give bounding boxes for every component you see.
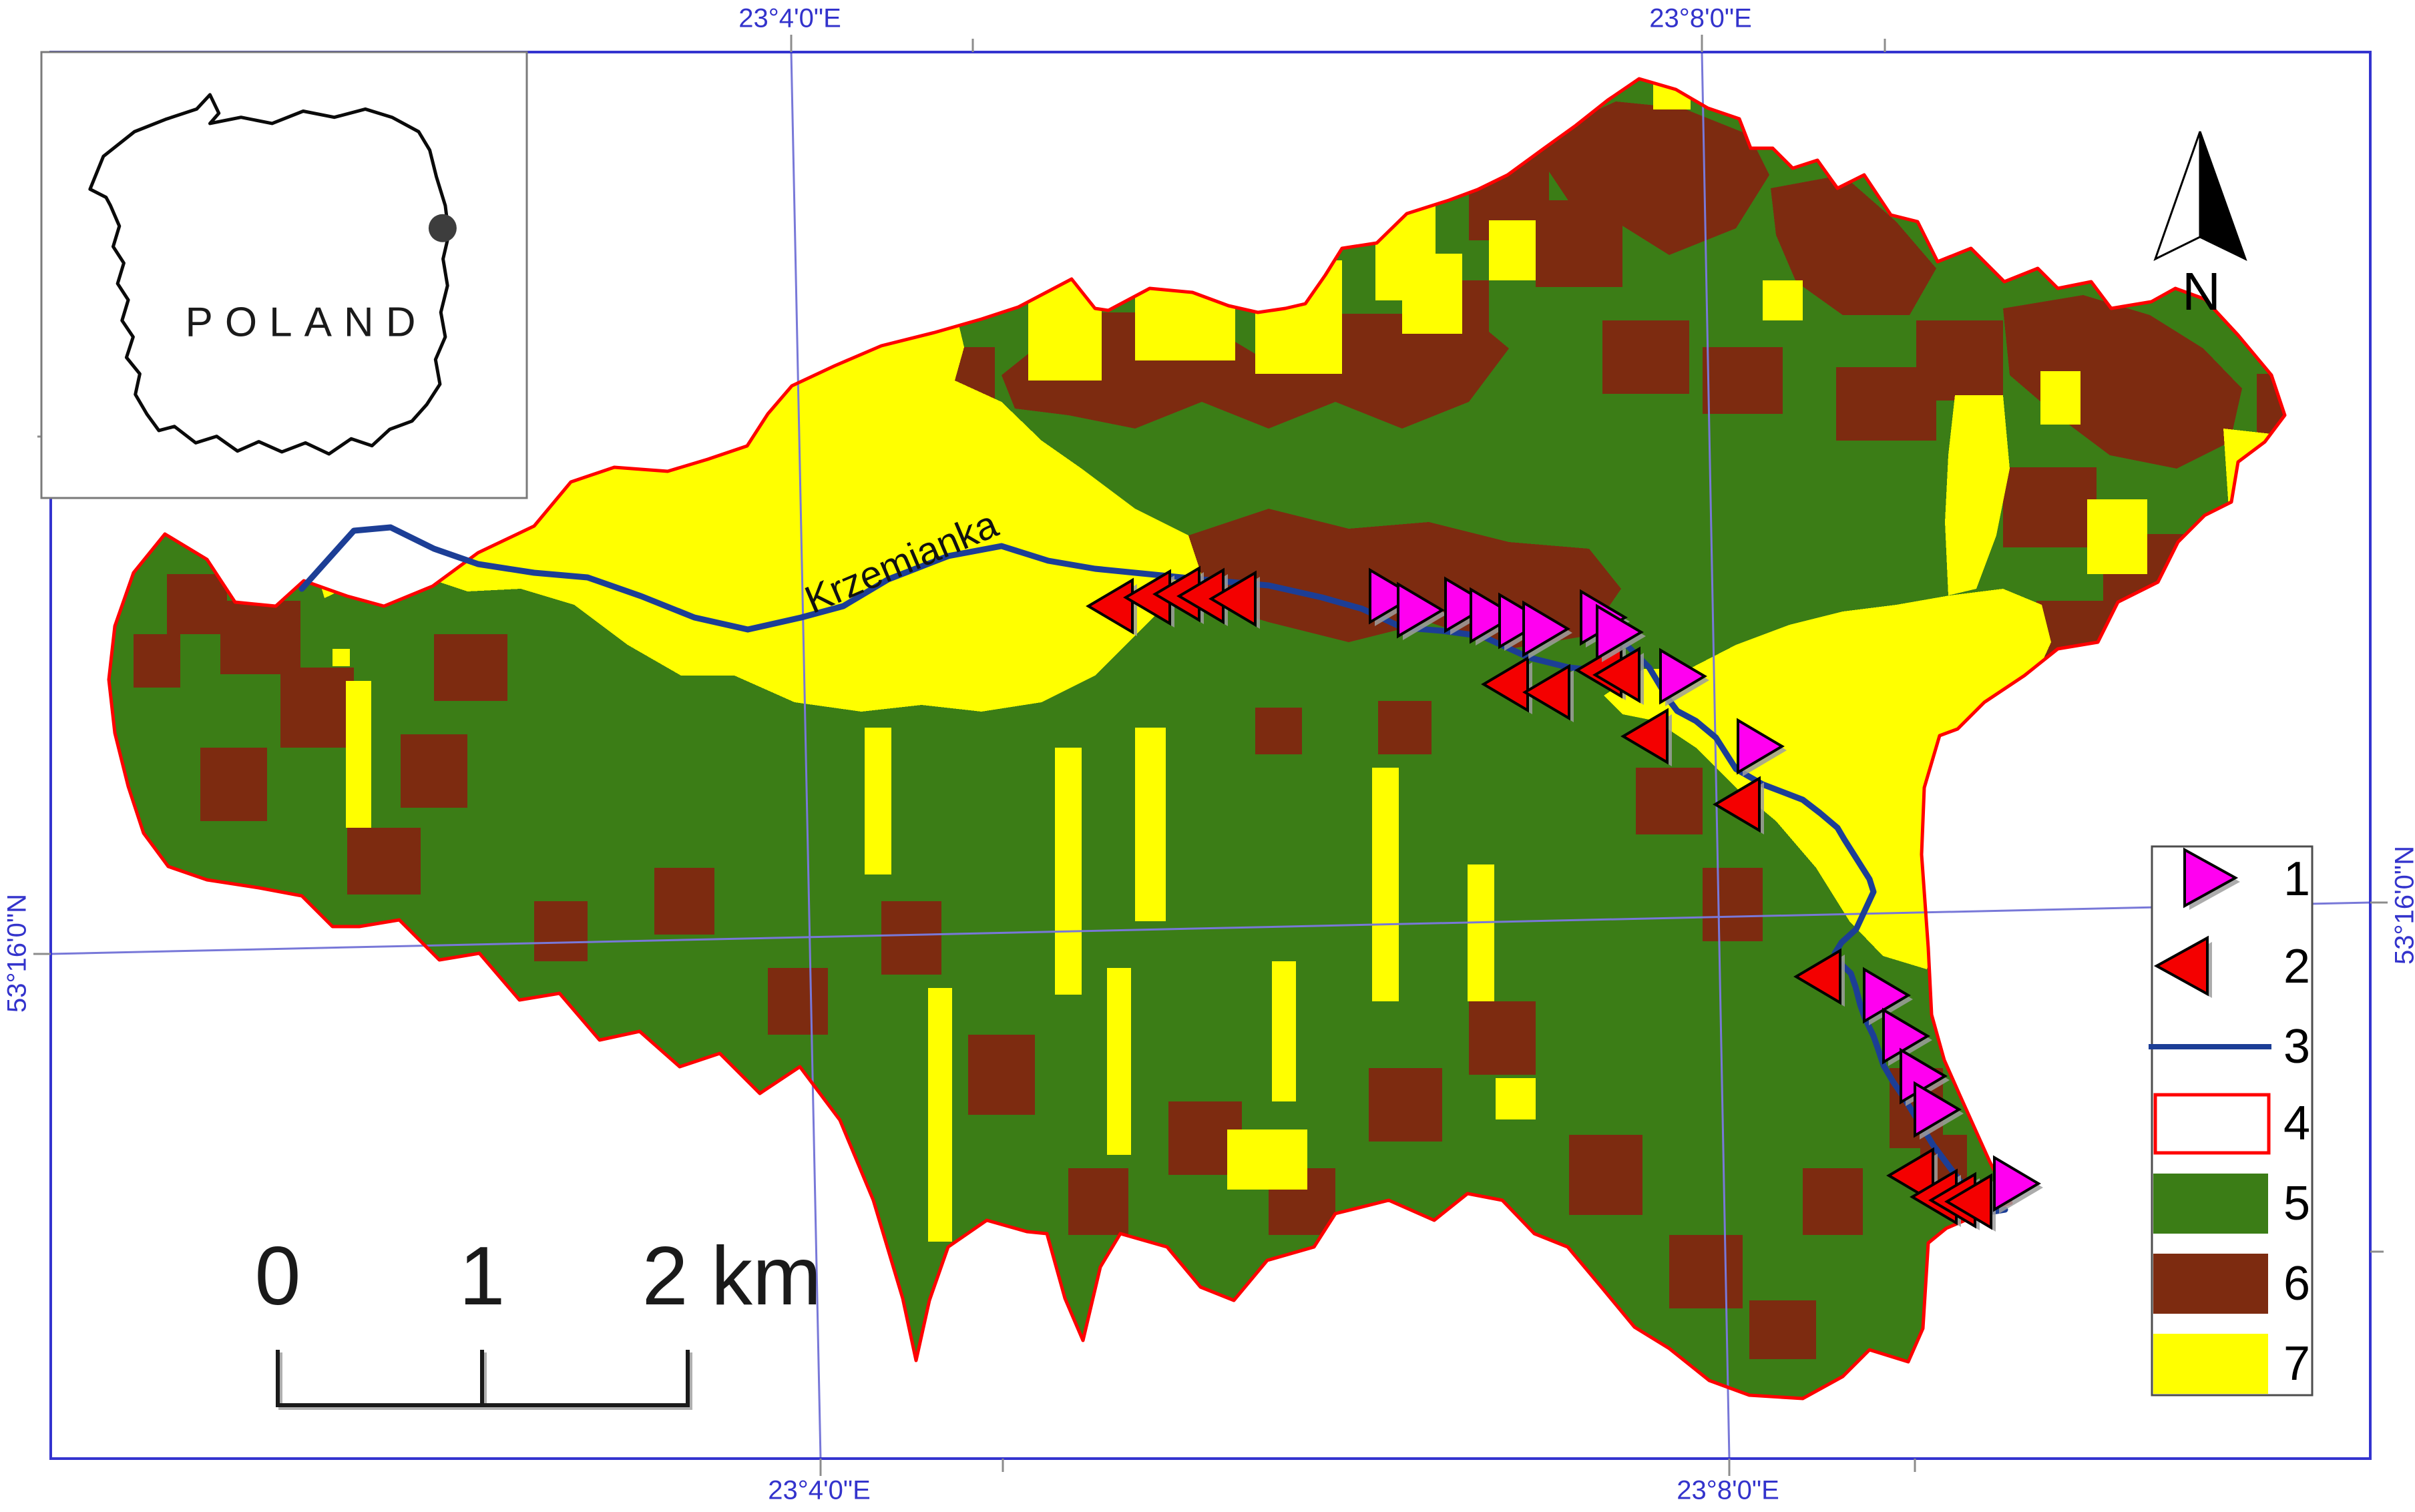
brown-patch <box>401 734 467 808</box>
coord-label-top-east: 23°8'0"E <box>1649 4 1752 34</box>
brown-patch <box>167 574 227 634</box>
legend-symbol-5 <box>2153 1174 2268 1234</box>
brown-patch <box>981 200 1042 287</box>
brown-patch <box>1602 320 1689 394</box>
yellow-patch <box>346 681 371 828</box>
inset-country-label: POLAND <box>186 299 428 346</box>
yellow-patch <box>1255 260 1342 374</box>
yellow-patch <box>395 993 437 1033</box>
yellow-patch <box>1055 748 1082 995</box>
coord-label-bottom-west: 23°4'0"E <box>768 1476 871 1506</box>
map-canvas <box>0 0 2415 1512</box>
coord-label-bottom-east: 23°8'0"E <box>1677 1476 1779 1506</box>
coord-label-top-west: 23°4'0"E <box>738 4 841 34</box>
yellow-patch <box>2163 638 2210 678</box>
legend-label-6: 6 <box>2283 1256 2310 1311</box>
yellow-patch <box>1468 864 1494 1001</box>
yellow-patch <box>1372 768 1399 1001</box>
yellow-patch <box>1108 120 1188 194</box>
brown-patch <box>134 634 180 688</box>
legend-label-3: 3 <box>2283 1019 2310 1074</box>
brown-patch <box>1569 1135 1642 1215</box>
brown-patch <box>2137 621 2217 681</box>
yellow-patch <box>865 728 891 874</box>
yellow-patch <box>1402 254 1462 334</box>
poland-inset <box>41 52 527 498</box>
brown-patch <box>768 968 828 1035</box>
brown-patch <box>200 748 267 821</box>
brown-patch <box>534 901 588 961</box>
brown-patch <box>881 901 941 975</box>
coord-label-right: 53°16'0"N <box>2390 846 2415 965</box>
scalebar-label-0: 0 <box>255 1229 301 1324</box>
scalebar-label-1: 1 <box>459 1229 505 1324</box>
scalebar-label-2km: 2 km <box>642 1229 822 1324</box>
brown-patch <box>2190 547 2263 614</box>
legend-symbol-4 <box>2155 1095 2269 1153</box>
yellow-patch <box>1763 280 1803 320</box>
brown-patch <box>1269 120 1342 180</box>
brown-patch <box>280 668 354 748</box>
legend-label-4: 4 <box>2283 1096 2310 1151</box>
legend-label-7: 7 <box>2283 1336 2310 1391</box>
scalebar <box>278 1350 688 1405</box>
north-label: N <box>2182 261 2221 322</box>
legend-label-1: 1 <box>2283 852 2310 907</box>
yellow-patch <box>768 427 808 458</box>
brown-patch <box>654 868 714 935</box>
map-figure: 23°4'0"E 23°8'0"E 23°4'0"E 23°8'0"E 53°1… <box>0 0 2415 1512</box>
yellow-patch <box>1272 961 1296 1101</box>
brown-patch <box>1749 1300 1816 1359</box>
brown-patch <box>1636 768 1703 834</box>
north-arrow-right-half <box>2200 132 2245 259</box>
yellow-patch <box>1496 1078 1536 1119</box>
brown-patch <box>1469 1001 1536 1075</box>
yellow-patch <box>1489 220 1536 280</box>
brown-patch <box>1369 100 1429 167</box>
yellow-patch <box>2087 499 2147 574</box>
legend-symbol-6 <box>2153 1254 2268 1314</box>
yellow-patch <box>928 988 952 1242</box>
poland-outline <box>90 95 449 454</box>
brown-patch <box>1042 134 1122 200</box>
brown-patch <box>1068 1168 1128 1235</box>
north-arrow <box>2155 132 2245 259</box>
study-area-dot <box>429 214 457 242</box>
brown-patch <box>1916 320 2003 401</box>
legend-label-5: 5 <box>2283 1176 2310 1231</box>
brown-patch <box>1369 1068 1442 1142</box>
brown-patch <box>968 1035 1035 1115</box>
yellow-patch <box>333 649 350 666</box>
brown-patch <box>1703 868 1763 941</box>
legend-symbol-7 <box>2153 1334 2268 1394</box>
brown-patch <box>1255 708 1302 754</box>
brown-patch <box>2003 467 2097 547</box>
legend-label-2: 2 <box>2283 939 2310 994</box>
yellow-patch <box>1135 728 1166 921</box>
yellow-patch <box>841 280 879 334</box>
brown-patch <box>1703 347 1783 414</box>
brown-patch <box>1669 1235 1743 1308</box>
brown-patch <box>347 828 421 895</box>
yellow-patch <box>2223 429 2286 529</box>
brown-patch <box>1378 701 1432 754</box>
brown-patch <box>220 601 300 674</box>
yellow-patch <box>1235 99 1289 159</box>
yellow-patch <box>2040 371 2080 425</box>
brown-patch <box>1536 200 1622 287</box>
brown-patch <box>1803 1168 1863 1235</box>
scalebar-shadow <box>280 1352 690 1408</box>
north-arrow-left-half <box>2155 132 2200 259</box>
coord-label-left: 53°16'0"N <box>3 894 33 1013</box>
yellow-patch <box>1107 968 1131 1155</box>
yellow-patch <box>1227 1129 1307 1190</box>
brown-patch <box>434 634 507 701</box>
